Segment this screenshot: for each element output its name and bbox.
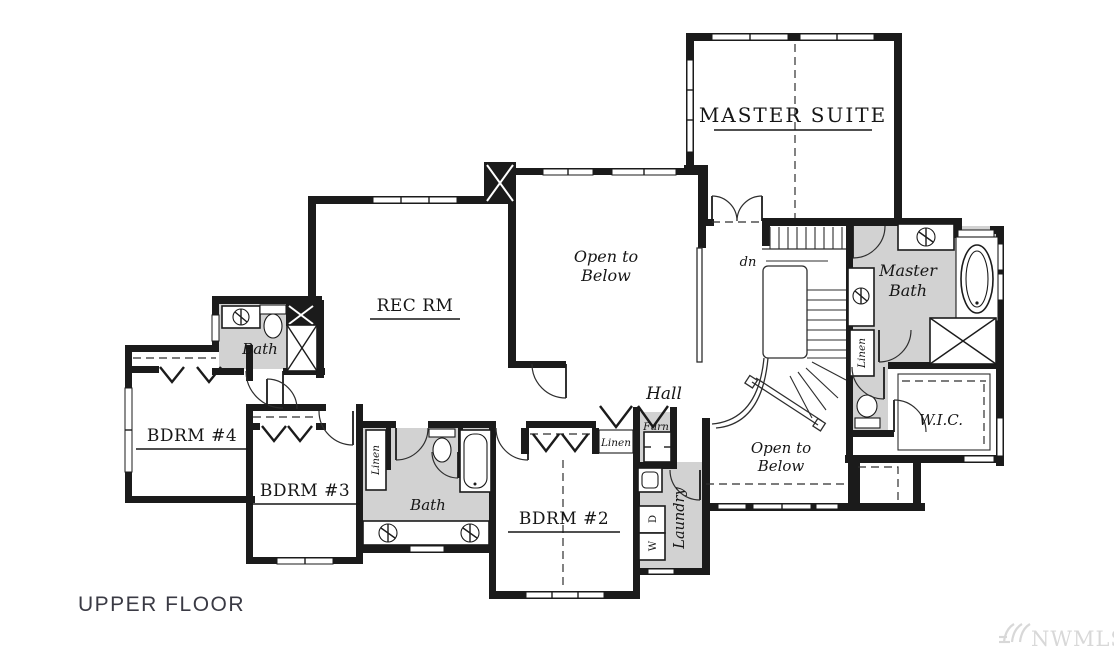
- bathtub-icon: [460, 430, 491, 492]
- wic-label: W.I.C.: [919, 411, 963, 429]
- staircase: dn: [712, 227, 846, 431]
- floor-plan-drawing: dn: [0, 0, 1114, 654]
- dryer-label: D: [648, 515, 659, 523]
- laundry-label: Laundry: [672, 487, 688, 550]
- hall-label: Hall: [645, 384, 682, 404]
- railing: [697, 248, 702, 362]
- floor-plan-page: dn: [0, 0, 1114, 654]
- bath-lower-label: Bath: [409, 496, 446, 514]
- floor-title: UPPER FLOOR: [78, 593, 245, 616]
- washer-label: W: [648, 540, 659, 551]
- linen-bath-label: Linen: [370, 445, 382, 476]
- laundry-sink-icon: [638, 468, 662, 492]
- furnace-icon: [644, 432, 671, 462]
- nwmls-logo-icon: [999, 624, 1030, 642]
- vanity-sink-icon: [848, 268, 874, 326]
- bdrm3-label: BDRM #3: [260, 481, 350, 501]
- master-suite-label: MASTER SUITE: [699, 103, 887, 127]
- furn-label: Furn: [642, 421, 669, 433]
- open-below-lower-label: Open to: [751, 439, 811, 457]
- rec-rm-label: REC RM: [377, 296, 454, 316]
- stairs-dn-label: dn: [740, 255, 757, 270]
- shower-icon: [287, 325, 317, 371]
- bath-upper-label: Bath: [241, 340, 278, 358]
- vanity-sink-icon: [222, 306, 260, 328]
- bdrm2-label: BDRM #2: [519, 509, 609, 529]
- bdrm4-label: BDRM #4: [147, 426, 237, 446]
- linen-hall-label: Linen: [600, 437, 631, 449]
- svg-text:Below: Below: [580, 266, 631, 285]
- master-bath-label: Master: [878, 261, 938, 280]
- svg-text:Below: Below: [757, 457, 805, 475]
- nwmls-watermark-text: NWMLS: [1031, 627, 1114, 651]
- shower-icon: [930, 318, 996, 364]
- bathtub-icon: [956, 237, 998, 321]
- open-below-upper-label: Open to: [574, 247, 638, 266]
- double-vanity-icon: [363, 521, 489, 545]
- linen-master-label: Linen: [856, 338, 868, 369]
- svg-text:Bath: Bath: [888, 281, 927, 300]
- vanity-sink-icon: [898, 224, 954, 250]
- nwmls-watermark: NWMLS: [999, 624, 1114, 651]
